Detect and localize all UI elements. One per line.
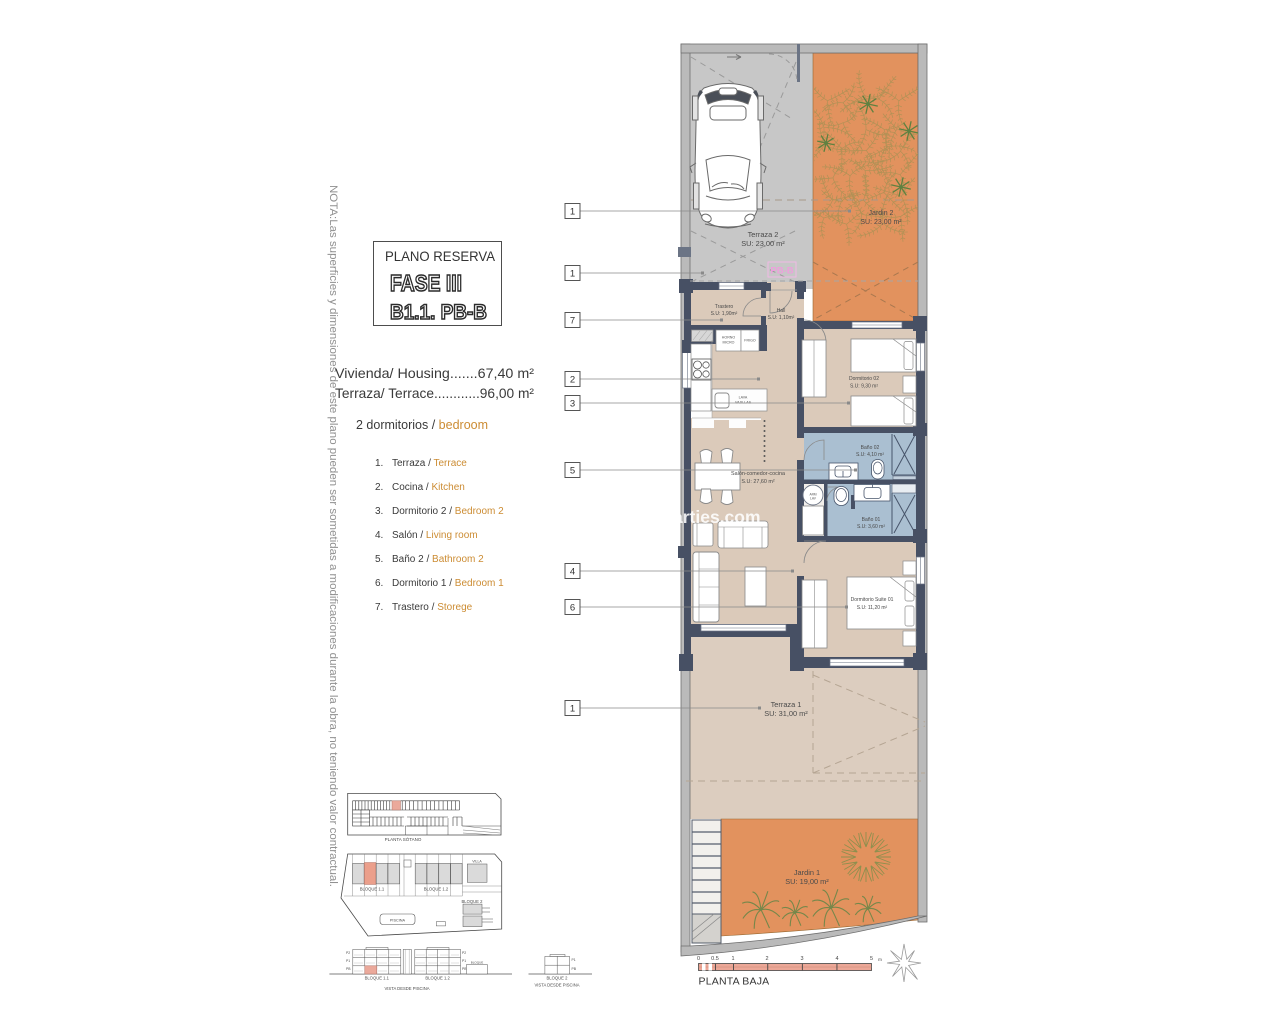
svg-text:FASE III: FASE III xyxy=(390,270,462,296)
svg-text:VAJILLAS: VAJILLAS xyxy=(735,401,752,405)
svg-text:2: 2 xyxy=(570,375,575,386)
svg-text:2: 2 xyxy=(765,956,768,962)
svg-text:B1.1. PB-B: B1.1. PB-B xyxy=(390,301,487,324)
svg-text:4: 4 xyxy=(835,956,838,962)
svg-text:m: m xyxy=(878,957,882,962)
svg-text:SU: 19,00 m²: SU: 19,00 m² xyxy=(785,877,829,886)
svg-text:PLANTA BAJA: PLANTA BAJA xyxy=(699,976,770,988)
svg-text:Trastero: Trastero xyxy=(715,304,734,310)
svg-text:P2: P2 xyxy=(346,951,350,955)
svg-text:PB-B: PB-B xyxy=(770,266,793,277)
svg-text:P1: P1 xyxy=(572,958,576,962)
svg-text:Jardin 2: Jardin 2 xyxy=(869,210,894,217)
svg-text:SU: 23,00 m²: SU: 23,00 m² xyxy=(741,239,785,248)
svg-text:SU: 23,00 m²: SU: 23,00 m² xyxy=(860,219,902,226)
svg-text:7: 7 xyxy=(570,316,575,327)
svg-text:P2: P2 xyxy=(462,951,466,955)
svg-text:S.U: 3,60 m²: S.U: 3,60 m² xyxy=(857,524,885,530)
svg-text:FRIGO: FRIGO xyxy=(744,339,756,343)
svg-text:HORNO: HORNO xyxy=(722,336,736,340)
svg-text:Hall: Hall xyxy=(777,308,786,314)
svg-text:3: 3 xyxy=(800,956,803,962)
svg-text:1: 1 xyxy=(570,704,575,715)
svg-text:0: 0 xyxy=(697,956,700,962)
svg-text:S.U: 11,20 m²: S.U: 11,20 m² xyxy=(857,605,888,611)
svg-text:Baño 01: Baño 01 xyxy=(862,517,881,523)
svg-text:PISCINA: PISCINA xyxy=(390,919,406,923)
svg-text:S.U: 4,10 m²: S.U: 4,10 m² xyxy=(856,452,884,458)
svg-text:Terraza 1: Terraza 1 xyxy=(771,700,802,709)
svg-text:4: 4 xyxy=(570,567,575,578)
svg-text:0.5: 0.5 xyxy=(711,956,719,962)
svg-text:BLOQUE 2: BLOQUE 2 xyxy=(547,976,569,981)
svg-text:SU: 31,00 m²: SU: 31,00 m² xyxy=(764,709,808,718)
svg-text:5: 5 xyxy=(570,466,575,477)
svg-text:3.Dormitorio 2 / Bedroom 2: 3.Dormitorio 2 / Bedroom 2 xyxy=(375,506,504,517)
svg-text:BLOQUE: BLOQUE xyxy=(471,961,484,965)
svg-text:6: 6 xyxy=(570,603,575,614)
svg-text:S.U: 1,90m²: S.U: 1,90m² xyxy=(711,311,738,317)
svg-text:1: 1 xyxy=(570,269,575,280)
svg-text:Dormitorio 02: Dormitorio 02 xyxy=(849,376,879,382)
svg-text:VILLA: VILLA xyxy=(472,860,482,864)
svg-text:MICRO: MICRO xyxy=(723,341,735,345)
svg-text:Terraza/ Terrace............96: Terraza/ Terrace............96,00 m² xyxy=(335,386,534,401)
svg-text:BLOQUE 1.1: BLOQUE 1.1 xyxy=(365,976,390,981)
svg-text:BLOQUE 1.2: BLOQUE 1.2 xyxy=(425,976,450,981)
svg-text:BLOQUE 1.1: BLOQUE 1.1 xyxy=(360,887,385,892)
svg-text:S.U: 27,60 m²: S.U: 27,60 m² xyxy=(741,479,774,485)
svg-text:Salón-comedor-cocina: Salón-comedor-cocina xyxy=(731,471,785,477)
svg-text:P1: P1 xyxy=(462,959,466,963)
svg-text:5.Baño 2 / Bathroom 2: 5.Baño 2 / Bathroom 2 xyxy=(375,554,484,565)
svg-text:VISTA DESDE PISCINA: VISTA DESDE PISCINA xyxy=(534,983,579,988)
svg-text:Jardin 1: Jardin 1 xyxy=(794,868,820,877)
svg-text:2 dormitorios / bedroom: 2 dormitorios / bedroom xyxy=(356,418,488,432)
svg-text:PB: PB xyxy=(572,967,577,971)
svg-text:6.Dormitorio 1 / Bedroom 1: 6.Dormitorio 1 / Bedroom 1 xyxy=(375,578,504,589)
svg-text:1: 1 xyxy=(731,956,734,962)
svg-text:PLANO RESERVA: PLANO RESERVA xyxy=(385,248,496,264)
svg-text:S.U: 1,10m²: S.U: 1,10m² xyxy=(768,315,795,321)
svg-text:Terraza 2: Terraza 2 xyxy=(748,230,779,239)
svg-text:Vivienda/ Housing.......67,40: Vivienda/ Housing.......67,40 m² xyxy=(335,366,534,381)
svg-text:PLANTA SÓTANO: PLANTA SÓTANO xyxy=(385,836,422,842)
svg-text:arties.com: arties.com xyxy=(673,507,761,527)
svg-text:NOTA:Las superficies y dimensi: NOTA:Las superficies y dimensiones de es… xyxy=(327,185,339,887)
svg-text:Baño 02: Baño 02 xyxy=(861,445,880,451)
svg-text:VISTA DESDE PISCINA: VISTA DESDE PISCINA xyxy=(384,986,429,991)
svg-text:LAVA: LAVA xyxy=(739,396,748,400)
svg-text:5: 5 xyxy=(870,956,873,962)
svg-text:3: 3 xyxy=(570,399,575,410)
svg-text:PB: PB xyxy=(346,967,351,971)
svg-text:BLOQUE 2: BLOQUE 2 xyxy=(462,899,484,904)
svg-text:P1: P1 xyxy=(346,959,350,963)
svg-text:BLOQUE 1.2: BLOQUE 1.2 xyxy=(424,887,449,892)
svg-text:Dormitorio Suite 01: Dormitorio Suite 01 xyxy=(851,597,894,603)
svg-text:LAV: LAV xyxy=(810,497,817,501)
svg-text:S.U: 9,30 m²: S.U: 9,30 m² xyxy=(850,384,878,390)
svg-text:1: 1 xyxy=(570,207,575,218)
